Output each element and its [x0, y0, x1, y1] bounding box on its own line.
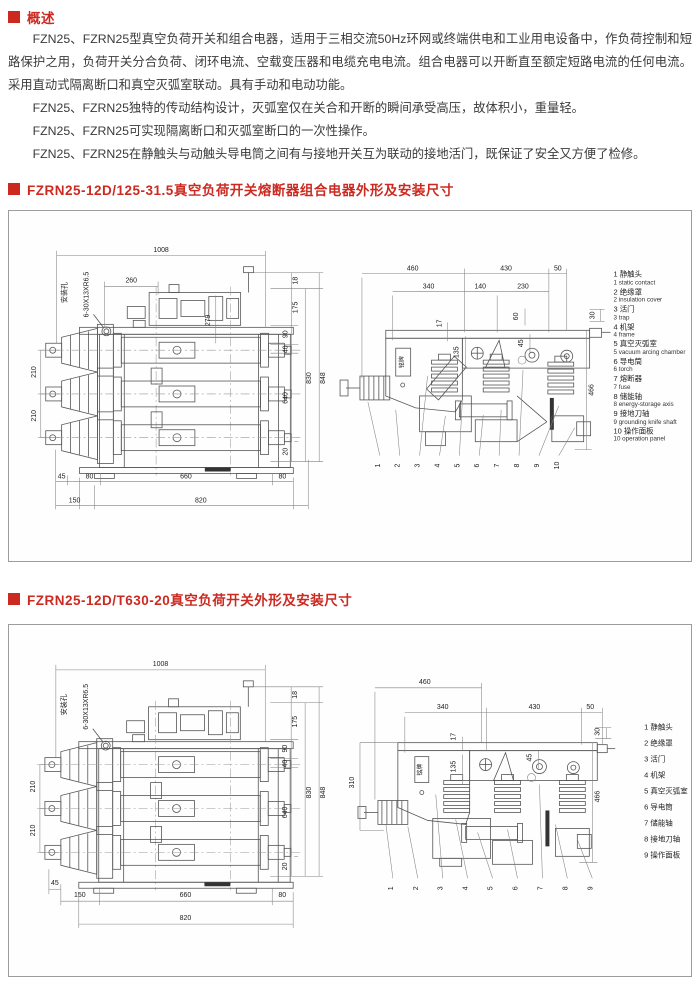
callout-4: 4 [463, 886, 470, 890]
dim-640: 640 [282, 392, 289, 404]
dim-660: 660 [180, 473, 192, 480]
dim-830: 830 [306, 372, 313, 384]
dim-848: 848 [320, 372, 327, 384]
legend-item-zh: 3 活门 [644, 754, 665, 764]
mounting-hole-label: 安装孔 [59, 694, 68, 715]
overview-paragraph: FZN25、FZRN25型真空负荷开关和组合电器，适用于三相交流50Hz环网或终… [8, 28, 692, 97]
callout-8: 8 [514, 463, 521, 467]
dim-830: 830 [306, 787, 313, 799]
dim-230: 230 [517, 284, 529, 291]
legend-item-zh: 9 操作面板 [644, 849, 681, 859]
legend-item-en: 2 insulation cover [613, 296, 662, 303]
dim-18: 18 [292, 277, 299, 285]
dim-17: 17 [436, 319, 443, 327]
legend-item-zh: 4 机架 [644, 770, 666, 780]
dim-460: 460 [407, 266, 419, 273]
dim-660: 660 [180, 892, 192, 899]
dim-45: 45 [518, 339, 525, 347]
dim-40: 40 [282, 760, 289, 768]
legend-item-en: 5 vacuum arcing chamber [613, 349, 685, 356]
overview-paragraph: FZN25、FZRN25在静触头与动触头导电筒之间有与接地开关互为联动的接地活门… [8, 143, 692, 166]
legend-item-zh: 10 操作面板 [613, 426, 654, 436]
dim-340: 340 [437, 704, 449, 711]
legend-item-en: 4 frame [613, 331, 635, 338]
dim-1008: 1008 [153, 661, 169, 668]
nameplate-label: 铭牌 [398, 356, 406, 368]
dim-340: 340 [423, 284, 435, 291]
front-view-geometry-1 [38, 267, 301, 479]
legend-item-zh: 5 真空灭弧室 [644, 786, 688, 796]
dim-310: 310 [349, 777, 356, 789]
dim-460: 460 [419, 679, 431, 686]
legend-item-en: 8 energy-storage axis [613, 401, 673, 408]
legend-item-zh: 7 储能轴 [644, 817, 673, 827]
legend-item-zh: 3 活门 [613, 303, 634, 313]
callout-2: 2 [413, 886, 420, 890]
dim-430: 430 [500, 266, 512, 273]
callout-6: 6 [474, 463, 481, 467]
legend-item-zh: 6 导电筒 [644, 801, 673, 811]
dim-640: 640 [282, 807, 289, 819]
overview-title: 概述 [27, 7, 55, 27]
legend-item-zh: 4 机架 [613, 321, 635, 331]
callout-10: 10 [554, 462, 561, 470]
dim-135: 135 [451, 761, 458, 773]
callout-4: 4 [434, 463, 441, 467]
dim-466: 466 [589, 384, 596, 396]
drawing-box-load-switch: 1008 安装孔 6-30X13XR6.5 210 210 18 175 90 … [8, 624, 692, 977]
overview-paragraph: FZN25、FZRN25独特的传动结构设计，灭弧室仅在关合和开断的瞬间承受高压，… [8, 97, 692, 120]
dim-40: 40 [282, 345, 289, 353]
legend-item-en: 3 trap [613, 314, 630, 321]
dim-30: 30 [594, 728, 601, 736]
nameplate-label: 铭牌 [416, 764, 424, 776]
legend-item-zh: 8 接地刀轴 [644, 833, 680, 843]
overview-body: FZN25、FZRN25型真空负荷开关和组合电器，适用于三相交流50Hz环网或终… [8, 28, 692, 166]
callout-3: 3 [415, 463, 422, 467]
callout-1: 1 [388, 886, 395, 890]
side-view-geometry-1 [340, 328, 610, 445]
legend-item-en: 10 operation panel [613, 436, 665, 443]
dim-820: 820 [195, 497, 207, 504]
front-view-geometry-2 [37, 681, 300, 893]
legend-item-zh: 1 静触头 [644, 722, 673, 732]
callout-7: 7 [494, 463, 501, 467]
dim-150: 150 [74, 892, 86, 899]
parts-legend-2: 1 静触头 2 绝缘罩 3 活门 4 机架 5 真空灭弧室 6 导电筒 7 储能… [644, 722, 688, 860]
dim-45: 45 [526, 754, 533, 762]
legend-item-zh: 9 接地刀轴 [613, 408, 649, 418]
catalog-page: { "colors": { "accent": "#cc2a21", "body… [0, 0, 700, 984]
callout-6: 6 [513, 886, 520, 890]
dim-50: 50 [554, 266, 562, 273]
dim-60: 60 [513, 312, 520, 320]
dim-30: 30 [590, 311, 597, 319]
red-square-bullet-icon [8, 593, 20, 605]
dim-18: 18 [292, 691, 299, 699]
legend-item-zh: 8 储能轴 [613, 391, 642, 401]
red-square-bullet-icon [8, 183, 20, 195]
dim-90: 90 [282, 745, 289, 753]
technical-drawing-1: 1008 260 安装孔 6-30X13XR6.5 279 210 210 18… [9, 211, 691, 561]
parts-legend-1: 1 静触头 1 static contact 2 绝缘罩 2 insulatio… [613, 269, 685, 443]
section1-title: FZRN25-12D/125-31.5真空负荷开关熔断器组合电器外形及安装尺寸 [27, 179, 454, 199]
callout-3: 3 [438, 886, 445, 890]
dim-279: 279 [205, 314, 212, 326]
callout-1: 1 [375, 463, 382, 467]
dim-175: 175 [292, 302, 299, 314]
section2-title: FZRN25-12D/T630-20真空负荷开关外形及安装尺寸 [27, 589, 352, 609]
callout-5: 5 [488, 886, 495, 890]
legend-item-zh: 6 导电筒 [613, 356, 642, 366]
callout-8: 8 [562, 886, 569, 890]
dim-1008: 1008 [153, 247, 169, 254]
dim-260: 260 [125, 278, 137, 285]
legend-item-zh: 7 熔断器 [613, 373, 642, 383]
dim-210-bottom: 210 [30, 824, 37, 836]
dim-175: 175 [292, 716, 299, 728]
legend-item-zh: 2 绝缘罩 [613, 287, 642, 297]
dim-466: 466 [594, 791, 601, 803]
dim-140: 140 [474, 284, 486, 291]
dim-80-left: 80 [86, 473, 94, 480]
mounting-hole-spec: 6-30X13XR6.5 [83, 684, 90, 730]
dim-45: 45 [51, 880, 59, 887]
section1-header: FZRN25-12D/125-31.5真空负荷开关熔断器组合电器外形及安装尺寸 [8, 179, 454, 199]
technical-drawing-2: 1008 安装孔 6-30X13XR6.5 210 210 18 175 90 … [9, 625, 691, 976]
callout-9: 9 [587, 886, 594, 890]
side-view-geometry-2 [358, 743, 615, 867]
dim-80-right: 80 [279, 473, 287, 480]
callout-9: 9 [534, 463, 541, 467]
legend-item-en: 6 torch [613, 366, 633, 373]
legend-item-zh: 5 真空灭弧室 [613, 338, 657, 348]
dim-80: 80 [278, 892, 286, 899]
callout-5: 5 [454, 463, 461, 467]
dim-820: 820 [180, 915, 192, 922]
legend-item-zh: 2 绝缘罩 [644, 738, 673, 748]
dim-17: 17 [451, 733, 458, 741]
dim-210-bottom: 210 [31, 410, 38, 422]
overview-paragraph: FZN25、FZRN25可实现隔离断口和灭弧室断口的一次性操作。 [8, 120, 692, 143]
dim-45: 45 [58, 473, 66, 480]
dim-150: 150 [69, 497, 81, 504]
mounting-hole-spec: 6-30X13XR6.5 [83, 272, 90, 318]
legend-item-en: 9 grounding knife shaft [613, 419, 677, 426]
dim-430: 430 [529, 704, 541, 711]
dim-135: 135 [453, 346, 460, 358]
overview-header: 概述 [8, 7, 55, 27]
red-square-bullet-icon [8, 11, 20, 23]
dim-210-top: 210 [31, 366, 38, 378]
dim-20: 20 [282, 862, 289, 870]
dim-20: 20 [282, 448, 289, 456]
dim-848: 848 [320, 787, 327, 799]
legend-item-en: 7 fuse [613, 384, 631, 391]
section2-header: FZRN25-12D/T630-20真空负荷开关外形及安装尺寸 [8, 589, 352, 609]
legend-item-en: 1 static contact [613, 280, 655, 287]
legend-item-zh: 1 静触头 [613, 269, 642, 279]
drawing-box-combination-unit: 1008 260 安装孔 6-30X13XR6.5 279 210 210 18… [8, 210, 692, 562]
callout-2: 2 [395, 463, 402, 467]
dim-90: 90 [282, 330, 289, 338]
dim-210-top: 210 [30, 781, 37, 793]
mounting-hole-label: 安装孔 [60, 282, 69, 303]
dim-50: 50 [586, 704, 594, 711]
callout-7: 7 [537, 886, 544, 890]
